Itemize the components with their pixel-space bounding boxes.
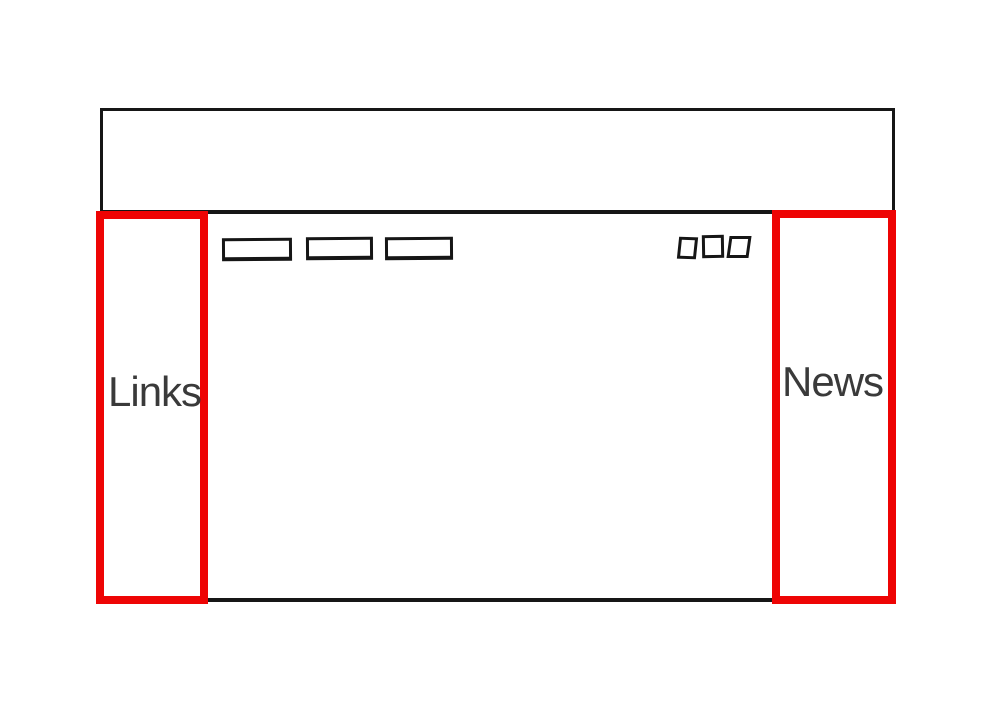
mini-icon-placeholder-1 [677, 237, 698, 260]
content-placeholder-box [150, 211, 840, 602]
wireframe-canvas: Links News [0, 0, 1000, 713]
header-placeholder-box [100, 108, 895, 213]
links-region-highlight: Links [96, 211, 208, 604]
mini-icon-placeholder-3 [726, 236, 751, 258]
nav-button-placeholder-2 [306, 237, 373, 260]
links-label: Links [108, 371, 201, 413]
news-label: News [782, 361, 883, 403]
mini-icon-placeholder-2 [702, 235, 724, 258]
nav-button-placeholder-1 [222, 238, 292, 261]
news-region-highlight: News [772, 210, 896, 604]
nav-button-placeholder-3 [385, 237, 453, 260]
